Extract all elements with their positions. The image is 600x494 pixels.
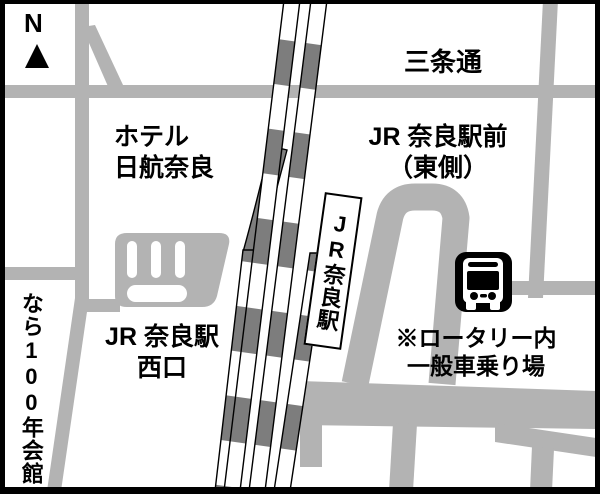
label-west-exit-line2: 西口 bbox=[137, 354, 187, 382]
bus-bay bbox=[127, 241, 137, 278]
bus-bay bbox=[175, 241, 185, 278]
compass-north-label: N bbox=[24, 8, 43, 40]
label-hotel-nikko: ホテル日航奈良 bbox=[114, 122, 214, 183]
north-arrow-icon bbox=[25, 44, 49, 68]
label-hotel-line2: 日航奈良 bbox=[114, 154, 214, 182]
label-west-exit-line1: JR 奈良駅 bbox=[105, 323, 219, 351]
label-east-exit-line1: JR 奈良駅前 bbox=[369, 123, 508, 151]
label-rotary-note: ※ロータリー内一般車乗り場 bbox=[392, 324, 560, 380]
road-left-slanted bbox=[47, 298, 89, 491]
bus-bay bbox=[151, 241, 161, 278]
road-bottom-right bbox=[530, 446, 554, 491]
road-lower-horizontal bbox=[300, 381, 596, 429]
label-west-exit: JR 奈良駅西口 bbox=[103, 322, 221, 383]
road-west-rotary-stub bbox=[86, 299, 120, 312]
bus-bay-island bbox=[127, 285, 187, 302]
label-nara-100-hall: なら100年会館 bbox=[17, 292, 44, 467]
road-left-stub bbox=[0, 267, 82, 280]
label-hotel-line1: ホテル bbox=[114, 123, 189, 151]
road-right-vertical bbox=[528, 0, 558, 298]
bus-icon bbox=[455, 252, 512, 312]
label-east-exit: JR 奈良駅前（東側） bbox=[358, 122, 518, 183]
label-rotary-note-line1: ※ロータリー内 bbox=[396, 325, 557, 351]
label-east-exit-line2: （東側） bbox=[388, 154, 488, 182]
road-bottom-center bbox=[389, 423, 417, 491]
road-left-vertical bbox=[75, 0, 89, 305]
map-canvas bbox=[0, 0, 600, 494]
station-area-map: N 三条通 ホテル日航奈良 JR 奈良駅前（東側） JR 奈良駅西口 ※ロータリ… bbox=[0, 0, 600, 494]
label-rotary-note-line2: 一般車乗り場 bbox=[407, 353, 545, 379]
label-sanjo-dori: 三条通 bbox=[393, 47, 493, 79]
west-exit-rotary bbox=[115, 233, 229, 307]
